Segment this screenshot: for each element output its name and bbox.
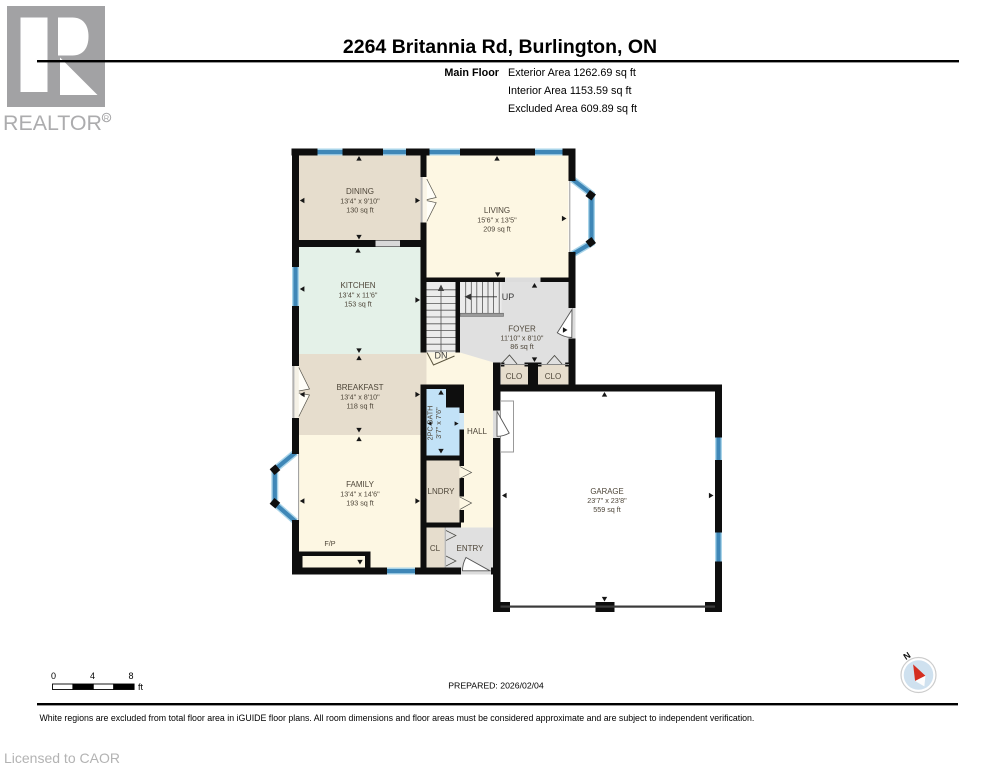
svg-text:GARAGE: GARAGE xyxy=(590,487,623,496)
svg-text:CLO: CLO xyxy=(545,372,561,381)
svg-text:209 sq ft: 209 sq ft xyxy=(483,225,511,234)
svg-text:15'6" x 13'5": 15'6" x 13'5" xyxy=(477,216,517,225)
svg-text:193 sq ft: 193 sq ft xyxy=(346,499,374,508)
svg-text:3'7" x 7'6": 3'7" x 7'6" xyxy=(434,407,443,439)
svg-text:118 sq ft: 118 sq ft xyxy=(346,402,373,411)
svg-text:23'7" x 23'8": 23'7" x 23'8" xyxy=(587,496,627,505)
svg-text:UP: UP xyxy=(502,292,515,302)
svg-text:86 sq ft: 86 sq ft xyxy=(510,342,534,351)
svg-text:0: 0 xyxy=(51,671,56,681)
svg-text:CLO: CLO xyxy=(506,372,522,381)
svg-text:13'4" x 8'10": 13'4" x 8'10" xyxy=(340,393,380,402)
svg-text:13'4" x 14'6": 13'4" x 14'6" xyxy=(340,490,380,499)
svg-text:4: 4 xyxy=(90,671,95,681)
svg-text:PREPARED: 2026/02/04: PREPARED: 2026/02/04 xyxy=(448,681,544,691)
svg-text:LNDRY: LNDRY xyxy=(428,487,456,496)
svg-text:ENTRY: ENTRY xyxy=(457,544,485,553)
svg-text:Interior Area 1153.59 sq ft: Interior Area 1153.59 sq ft xyxy=(508,85,631,97)
svg-text:FOYER: FOYER xyxy=(508,325,536,334)
svg-text:13'4" x 11'6": 13'4" x 11'6" xyxy=(339,291,378,300)
svg-text:FAMILY: FAMILY xyxy=(346,480,375,489)
svg-text:REALTOR: REALTOR xyxy=(3,112,102,135)
svg-text:DN: DN xyxy=(435,351,448,361)
svg-text:White regions are excluded fro: White regions are excluded from total fl… xyxy=(40,713,755,723)
svg-text:Excluded Area 609.89 sq ft: Excluded Area 609.89 sq ft xyxy=(508,103,637,115)
svg-text:KITCHEN: KITCHEN xyxy=(340,281,375,290)
svg-text:Exterior Area 1262.69 sq ft: Exterior Area 1262.69 sq ft xyxy=(508,67,636,79)
svg-text:559 sq ft: 559 sq ft xyxy=(593,505,621,514)
svg-text:130 sq ft: 130 sq ft xyxy=(346,206,374,215)
svg-text:DINING: DINING xyxy=(346,187,374,196)
svg-text:13'4" x 9'10": 13'4" x 9'10" xyxy=(340,197,380,206)
svg-text:LIVING: LIVING xyxy=(484,206,510,215)
svg-text:2264 Britannia Rd, Burlington,: 2264 Britannia Rd, Burlington, ON xyxy=(343,36,657,58)
svg-text:R: R xyxy=(104,113,110,122)
svg-text:ft: ft xyxy=(138,682,144,692)
svg-text:F/P: F/P xyxy=(324,539,335,548)
svg-text:HALL: HALL xyxy=(467,427,488,436)
svg-text:8: 8 xyxy=(128,671,133,681)
svg-text:BREAKFAST: BREAKFAST xyxy=(336,383,383,392)
svg-text:Main Floor: Main Floor xyxy=(444,67,499,79)
svg-text:153 sq ft: 153 sq ft xyxy=(344,300,372,309)
svg-text:Licensed to CAOR: Licensed to CAOR xyxy=(4,750,120,766)
svg-text:CL: CL xyxy=(430,544,441,553)
